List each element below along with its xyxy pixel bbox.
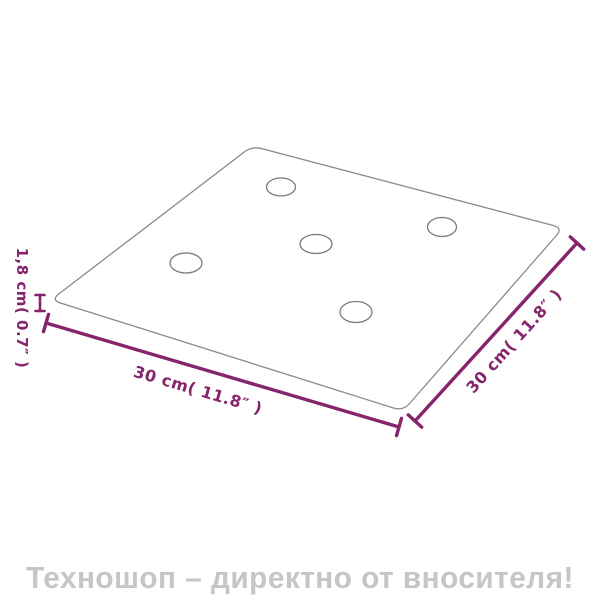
thickness-marker [36,295,45,311]
watermark-text: Техношоп – директно от вносителя! [26,560,574,596]
thickness-dimension-label: 1,8 cm( 0.7″ ) [13,248,31,369]
diagram-canvas [0,0,600,600]
product-dimension-diagram: 30 cm( 11.8″ ) 30 cm( 11.8″ ) 1,8 cm( 0.… [0,0,600,600]
